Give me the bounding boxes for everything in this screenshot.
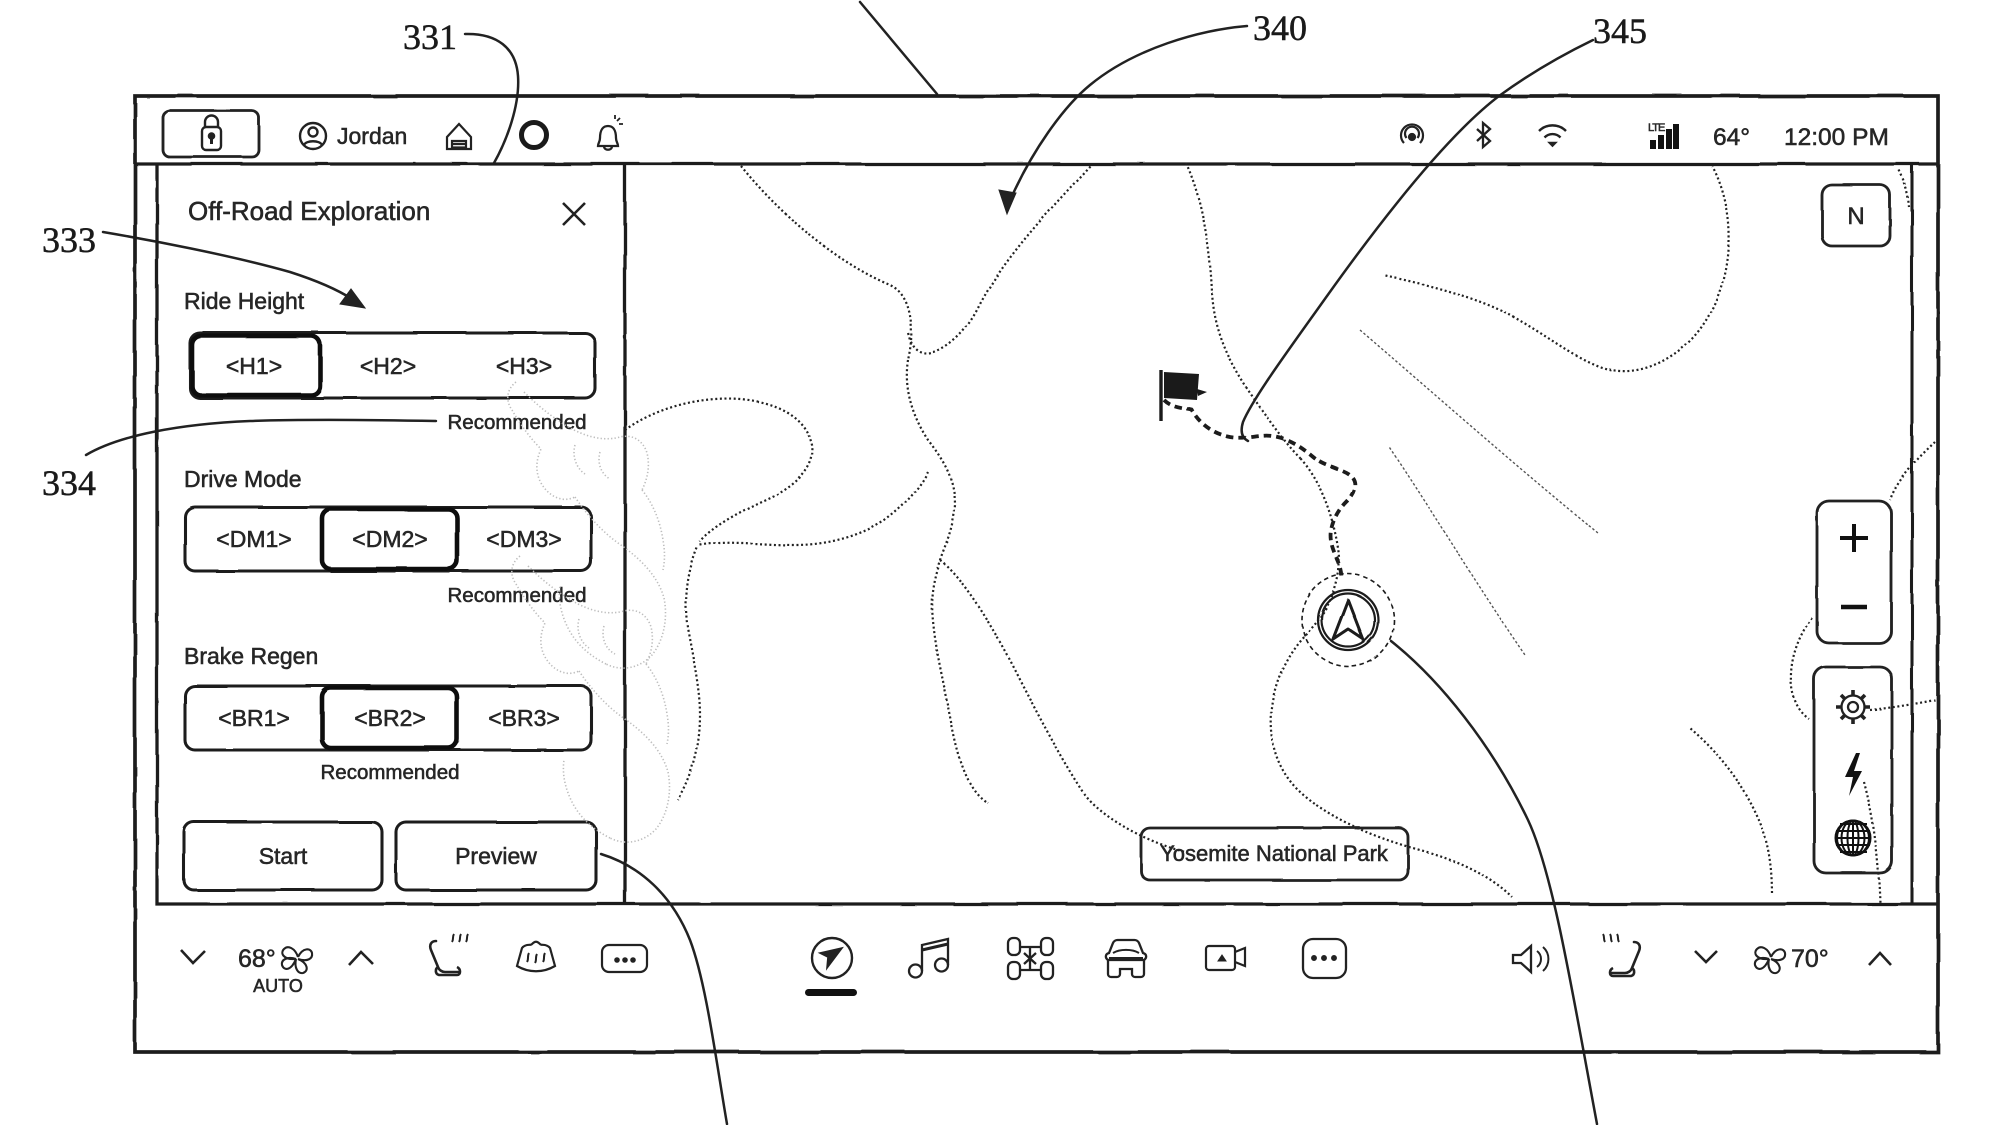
svg-text:N: N: [1847, 203, 1864, 230]
svg-text:<H3>: <H3>: [496, 353, 552, 379]
svg-text:333: 333: [42, 220, 96, 260]
svg-text:Preview: Preview: [455, 843, 537, 869]
svg-text:Start: Start: [259, 843, 308, 869]
svg-text:334: 334: [42, 463, 96, 503]
svg-text:Yosemite National Park: Yosemite National Park: [1160, 841, 1389, 866]
svg-text:<DM3>: <DM3>: [486, 526, 561, 552]
svg-text:<BR2>: <BR2>: [354, 705, 426, 731]
svg-text:Jordan: Jordan: [337, 123, 407, 149]
svg-text:Recommended: Recommended: [447, 411, 586, 434]
svg-text:<H2>: <H2>: [360, 353, 416, 379]
svg-text:340: 340: [1253, 8, 1307, 48]
svg-text:<H1>: <H1>: [226, 353, 282, 379]
svg-text:<BR3>: <BR3>: [488, 705, 560, 731]
svg-text:<DM1>: <DM1>: [216, 526, 291, 552]
svg-text:331: 331: [403, 17, 457, 57]
svg-text:Recommended: Recommended: [320, 761, 459, 784]
svg-text:Off-Road Exploration: Off-Road Exploration: [188, 196, 430, 226]
svg-text:12:00 PM: 12:00 PM: [1784, 124, 1889, 151]
svg-text:70°: 70°: [1791, 945, 1829, 973]
svg-text:64°: 64°: [1713, 124, 1750, 151]
svg-text:<DM2>: <DM2>: [352, 526, 427, 552]
svg-text:AUTO: AUTO: [253, 976, 303, 996]
svg-text:Recommended: Recommended: [447, 584, 586, 607]
svg-text:345: 345: [1593, 11, 1647, 51]
svg-text:Ride Height: Ride Height: [184, 288, 305, 314]
svg-text:LTE: LTE: [1648, 122, 1665, 134]
svg-text:Drive Mode: Drive Mode: [184, 466, 302, 492]
svg-text:68°: 68°: [238, 945, 276, 973]
svg-text:Brake Regen: Brake Regen: [184, 643, 318, 669]
svg-text:<BR1>: <BR1>: [218, 705, 290, 731]
